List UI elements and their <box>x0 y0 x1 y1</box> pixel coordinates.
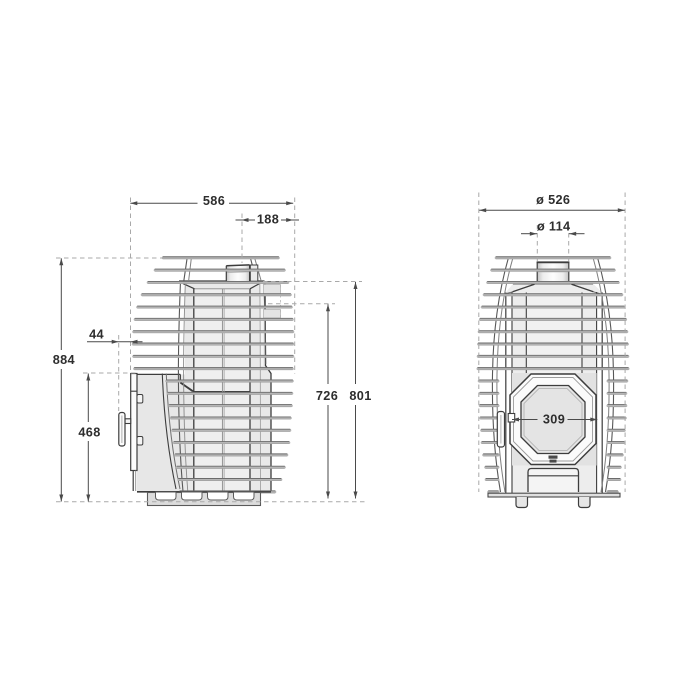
svg-text:586: 586 <box>203 194 225 208</box>
svg-text:188: 188 <box>257 212 279 226</box>
svg-text:44: 44 <box>89 328 104 342</box>
svg-text:801: 801 <box>349 389 371 403</box>
svg-text:ø 114: ø 114 <box>537 219 571 233</box>
svg-text:884: 884 <box>53 353 75 367</box>
svg-text:468: 468 <box>78 425 100 439</box>
svg-text:309: 309 <box>543 412 565 426</box>
svg-text:ø 526: ø 526 <box>536 193 570 207</box>
svg-text:726: 726 <box>316 389 338 403</box>
